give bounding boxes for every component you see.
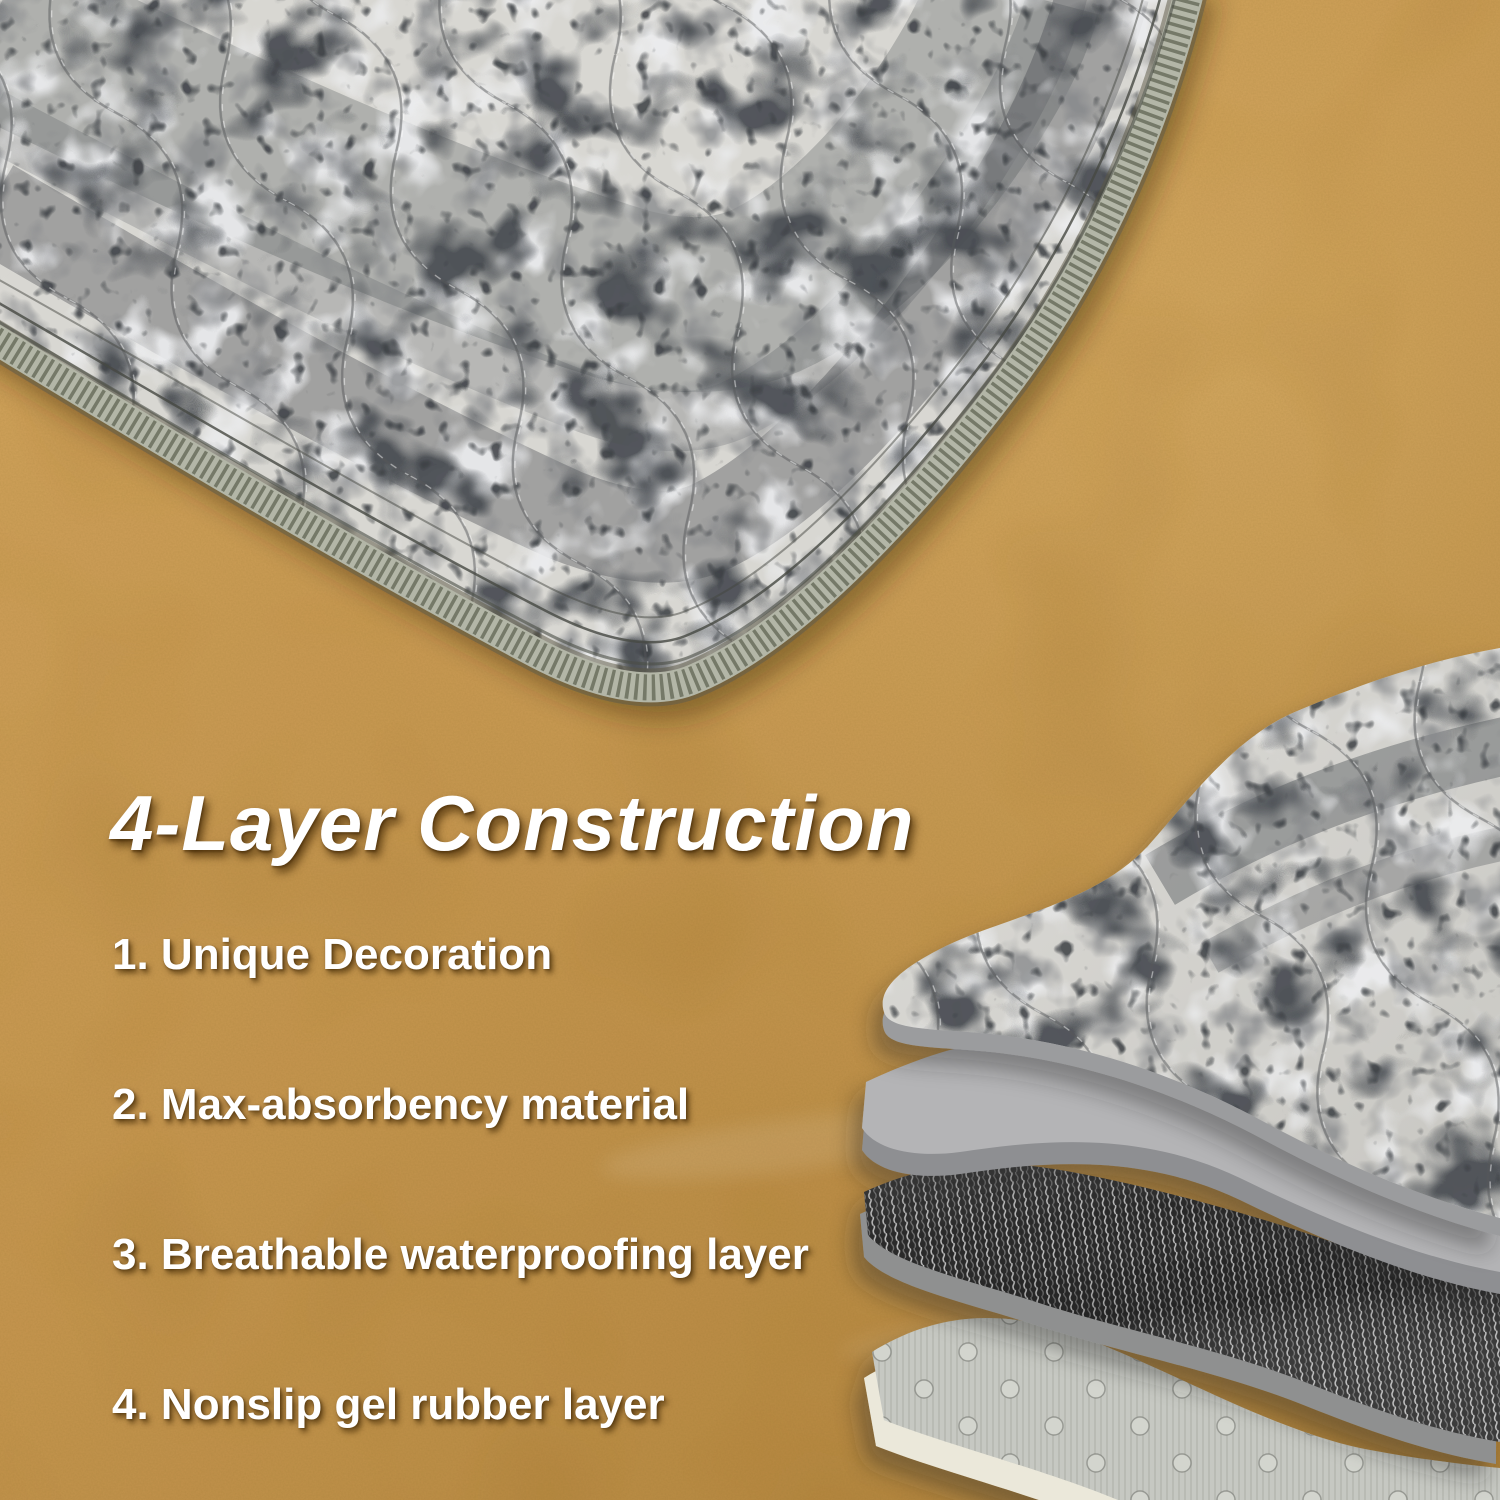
scene-graphic: [0, 0, 1500, 1500]
product-infographic: 4-Layer Construction 1. Unique Decoratio…: [0, 0, 1500, 1500]
